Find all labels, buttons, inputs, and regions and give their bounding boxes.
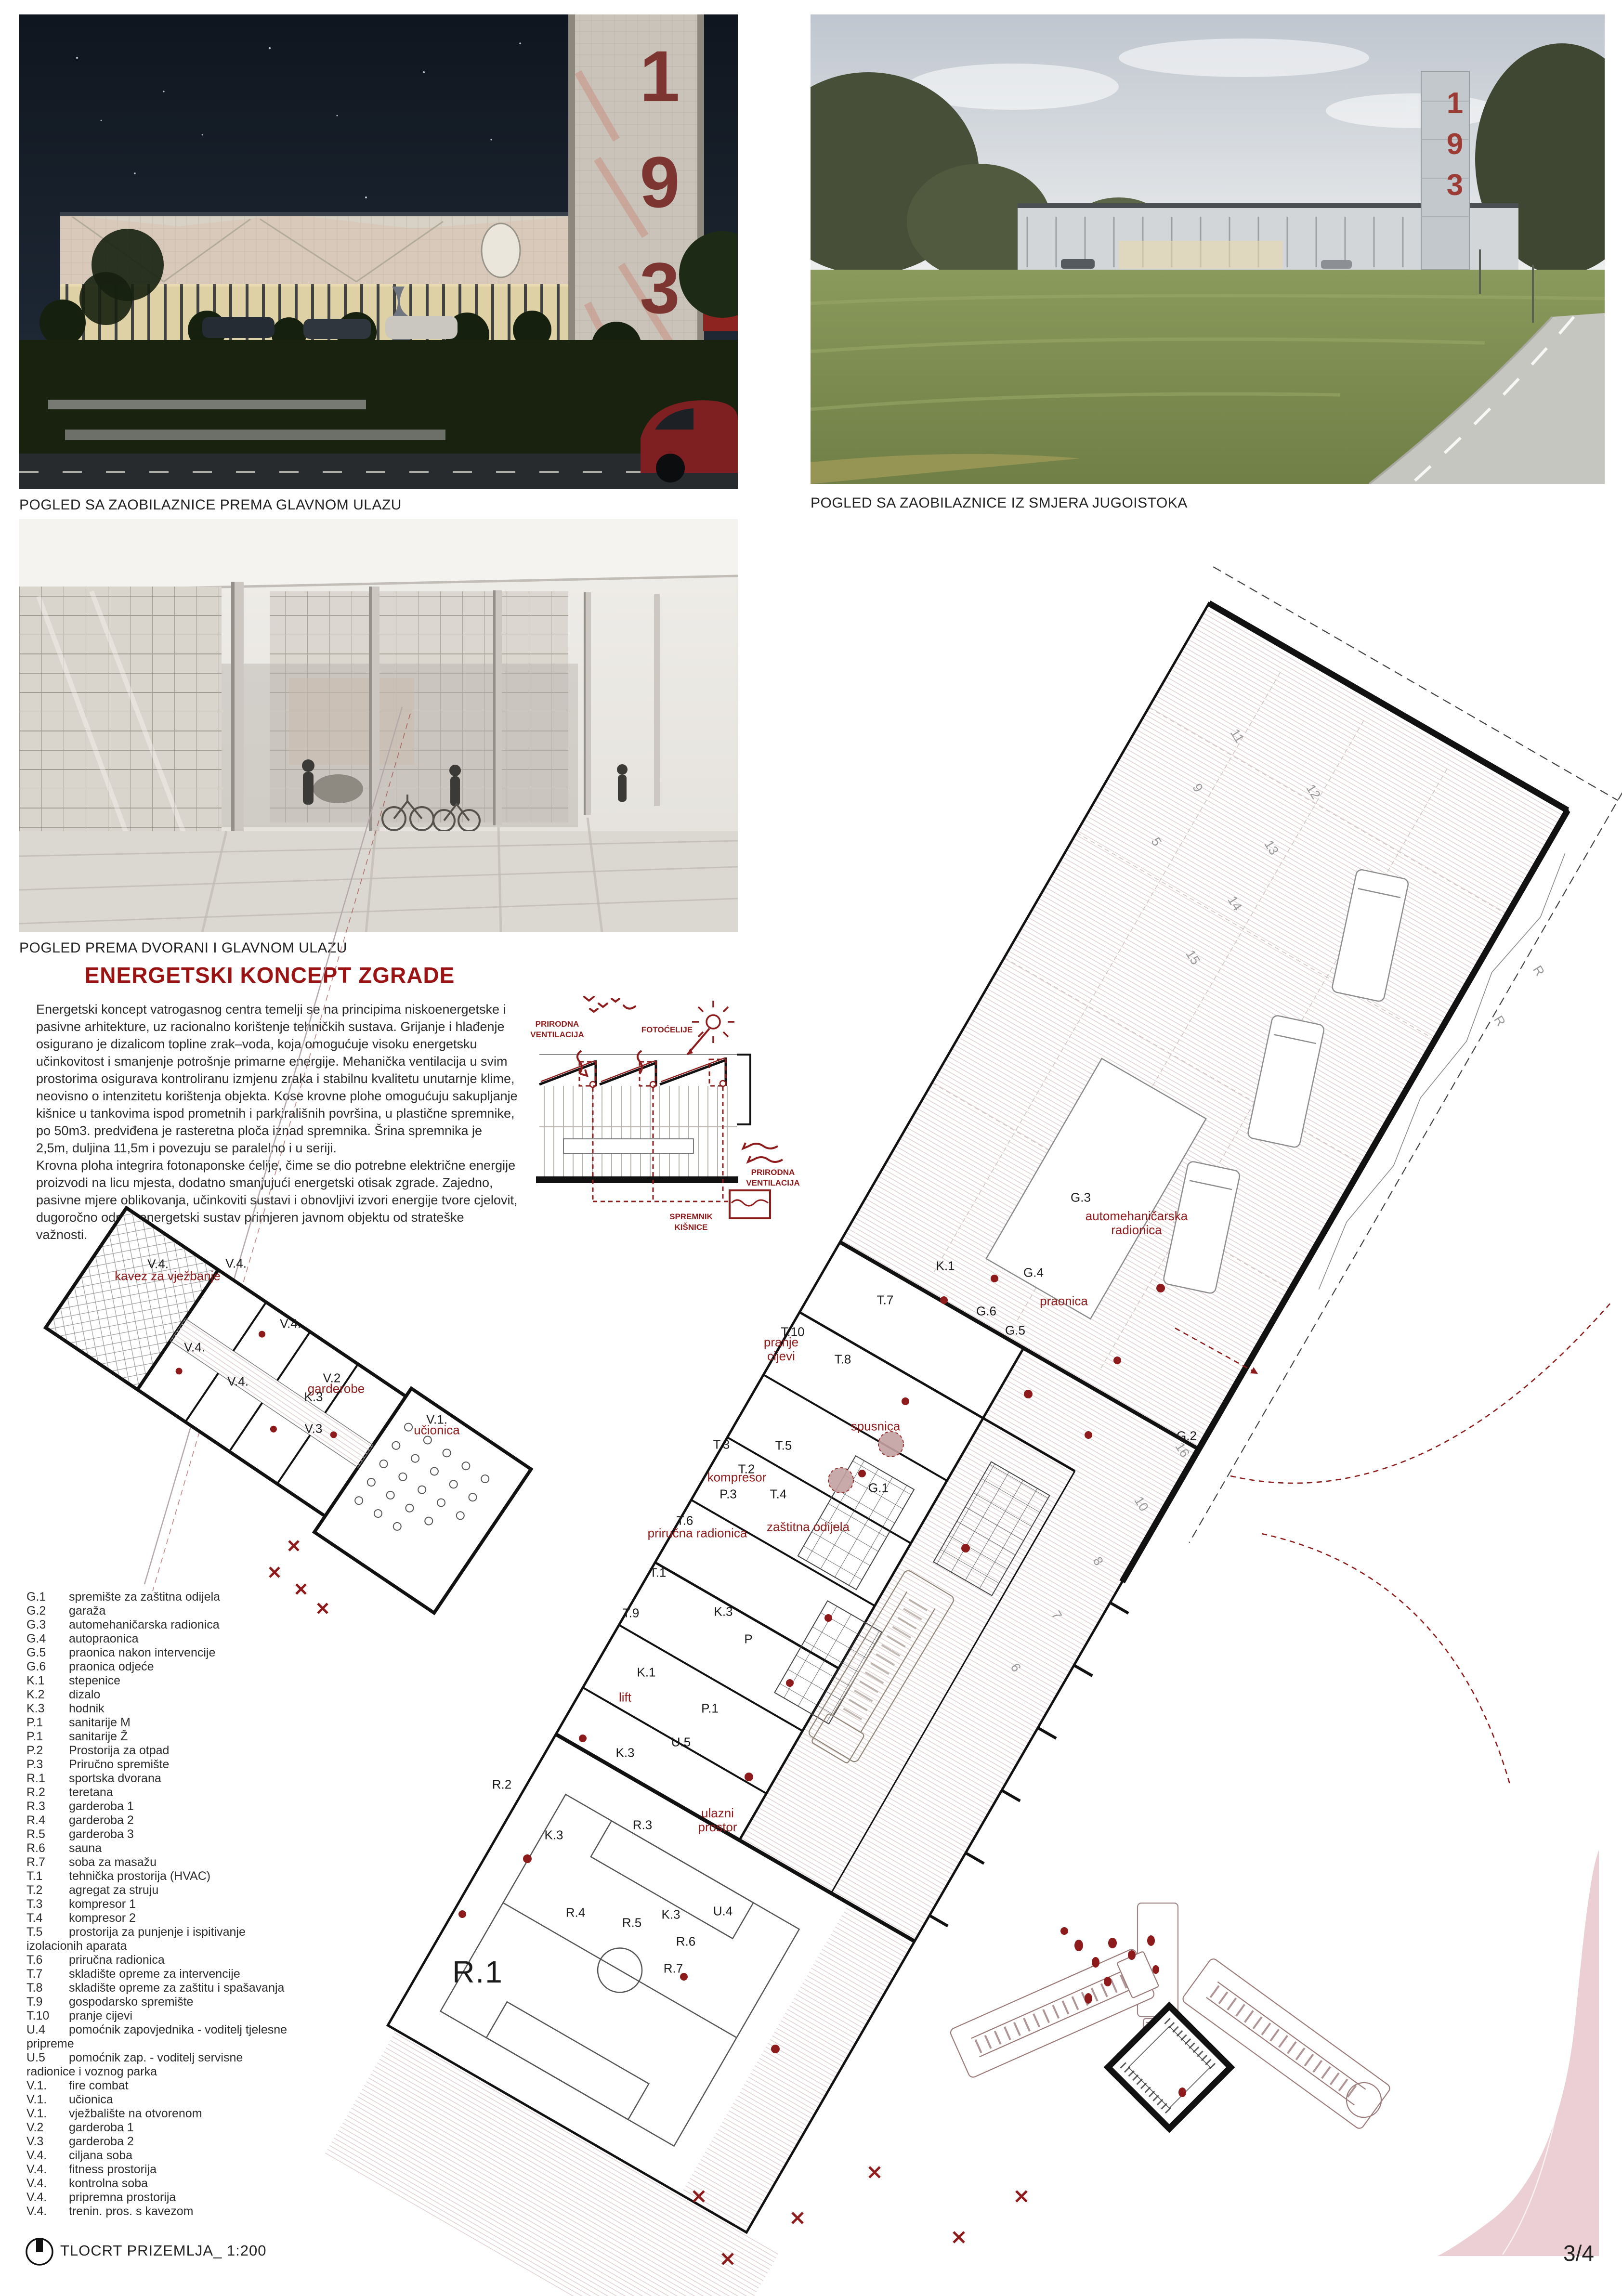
legend-code: V.2 bbox=[26, 2121, 69, 2135]
legend-row: R.3garderoba 1 bbox=[26, 1800, 289, 1813]
legend-label: Priručno spremište bbox=[69, 1758, 169, 1771]
legend-row: T.8skladište opreme za zaštitu i spašava… bbox=[26, 1981, 289, 1995]
legend-label: soba za masažu bbox=[69, 1855, 157, 1869]
plan-scale-label: TLOCRT PRIZEMLJA_ 1:200 bbox=[60, 2242, 266, 2259]
legend-label: pranje cijevi bbox=[69, 2009, 132, 2022]
legend-label: garderoba 1 bbox=[69, 2121, 134, 2134]
legend-code: G.3 bbox=[26, 1618, 69, 1632]
legend-code: R.2 bbox=[26, 1786, 69, 1800]
legend-row: G.5praonica nakon intervencije bbox=[26, 1646, 289, 1660]
legend-code: T.2 bbox=[26, 1883, 69, 1897]
legend-label: kompresor 1 bbox=[69, 1897, 136, 1911]
legend-code: V.4. bbox=[26, 2149, 69, 2163]
legend-label: stepenice bbox=[69, 1674, 120, 1687]
legend-code: V.3 bbox=[26, 2135, 69, 2149]
legend-row: K.1stepenice bbox=[26, 1674, 289, 1688]
legend-code: V.4. bbox=[26, 2205, 69, 2218]
legend-label: hodnik bbox=[69, 1702, 105, 1715]
legend-code: T.4 bbox=[26, 1911, 69, 1925]
legend-code: P.2 bbox=[26, 1744, 69, 1758]
legend-label: garaža bbox=[69, 1604, 105, 1618]
legend-code: V.1. bbox=[26, 2093, 69, 2107]
legend-code: K.3 bbox=[26, 1702, 69, 1716]
legend-row: T.6priručna radionica bbox=[26, 1953, 289, 1967]
legend-row: G.4autopraonica bbox=[26, 1632, 289, 1646]
legend-label: vježbalište na otvorenom bbox=[69, 2107, 202, 2120]
legend-code: R.5 bbox=[26, 1827, 69, 1841]
legend-row: T.10pranje cijevi bbox=[26, 2009, 289, 2023]
legend-code: G.1 bbox=[26, 1590, 69, 1604]
legend-code: K.2 bbox=[26, 1688, 69, 1702]
legend-label: skladište opreme za intervencije bbox=[69, 1967, 240, 1981]
legend-code: T.1 bbox=[26, 1869, 69, 1883]
legend-label: sauna bbox=[69, 1841, 102, 1855]
legend-row: T.7skladište opreme za intervencije bbox=[26, 1967, 289, 1981]
page-number: 3/4 bbox=[1563, 2240, 1594, 2266]
legend-row: V.4.fitness prostorija bbox=[26, 2163, 289, 2177]
legend-row: V.1.vježbalište na otvorenom bbox=[26, 2107, 289, 2121]
legend-row: P.3Priručno spremište bbox=[26, 1758, 289, 1772]
ladder-truck-right bbox=[1181, 1957, 1394, 2131]
legend-row: V.2garderoba 1 bbox=[26, 2121, 289, 2135]
north-arrow-icon bbox=[26, 2239, 52, 2265]
legend-label: garderoba 2 bbox=[69, 1813, 134, 1827]
legend-label: spremište za zaštitna odijela bbox=[69, 1590, 220, 1604]
legend-row: P.1sanitarije Ž bbox=[26, 1730, 289, 1744]
legend-row: T.3kompresor 1 bbox=[26, 1897, 289, 1911]
legend-label: sanitarije Ž bbox=[69, 1730, 128, 1743]
legend-code: R.7 bbox=[26, 1855, 69, 1869]
legend-label: automehaničarska radionica bbox=[69, 1618, 220, 1631]
legend-label: fitness prostorija bbox=[69, 2163, 157, 2176]
legend-label: garderoba 1 bbox=[69, 1800, 134, 1813]
legend-code: G.6 bbox=[26, 1660, 69, 1674]
legend-code: T.8 bbox=[26, 1981, 69, 1995]
legend-code: T.6 bbox=[26, 1953, 69, 1967]
legend-row: R.1sportska dvorana bbox=[26, 1772, 289, 1786]
legend-label: autopraonica bbox=[69, 1632, 139, 1645]
legend-row: K.3hodnik bbox=[26, 1702, 289, 1716]
legend-row: R.6sauna bbox=[26, 1841, 289, 1855]
presentation-sheet: 1 9 3 POGLED bbox=[0, 0, 1622, 2296]
legend-row: G.3automehaničarska radionica bbox=[26, 1618, 289, 1632]
legend-row: T.2agregat za struju bbox=[26, 1883, 289, 1897]
legend-label: praonica nakon intervencije bbox=[69, 1646, 215, 1659]
legend-code: K.1 bbox=[26, 1674, 69, 1688]
legend-label: ciljana soba bbox=[69, 2149, 132, 2162]
legend-code: R.6 bbox=[26, 1841, 69, 1855]
legend-row: G.2garaža bbox=[26, 1604, 289, 1618]
legend-row: T.1tehnička prostorija (HVAC) bbox=[26, 1869, 289, 1883]
legend-row: G.6praonica odjeće bbox=[26, 1660, 289, 1674]
legend-code: V.4. bbox=[26, 2163, 69, 2177]
legend-label: dizalo bbox=[69, 1688, 100, 1701]
legend-label: gospodarsko spremište bbox=[69, 1995, 193, 2009]
legend-row: R.7soba za masažu bbox=[26, 1855, 289, 1869]
pink-road bbox=[1438, 1850, 1599, 2256]
legend-label: kontrolna soba bbox=[69, 2177, 148, 2190]
legend-row: T.9gospodarsko spremište bbox=[26, 1995, 289, 2009]
legend-row: R.5garderoba 3 bbox=[26, 1827, 289, 1841]
legend-code: T.10 bbox=[26, 2009, 69, 2023]
legend-code: P.1 bbox=[26, 1730, 69, 1744]
legend-row: P.1sanitarije M bbox=[26, 1716, 289, 1730]
legend-label: tehnička prostorija (HVAC) bbox=[69, 1869, 210, 1883]
legend-row: G.1spremište za zaštitna odijela bbox=[26, 1590, 289, 1604]
legend-row: R.2teretana bbox=[26, 1786, 289, 1800]
legend-code: T.3 bbox=[26, 1897, 69, 1911]
legend-code: V.4. bbox=[26, 2177, 69, 2191]
legend-row: V.4.kontrolna soba bbox=[26, 2177, 289, 2191]
legend-label: sanitarije M bbox=[69, 1716, 131, 1729]
legend-code: G.4 bbox=[26, 1632, 69, 1646]
legend-label: Prostorija za otpad bbox=[69, 1744, 169, 1757]
legend-label: trenin. pros. s kavezom bbox=[69, 2205, 193, 2218]
legend-row: K.2dizalo bbox=[26, 1688, 289, 1702]
legend-row: V.4.pripremna prostorija bbox=[26, 2191, 289, 2205]
legend-code: T.7 bbox=[26, 1967, 69, 1981]
legend-label: priručna radionica bbox=[69, 1953, 165, 1967]
legend-label: sportska dvorana bbox=[69, 1772, 161, 1785]
legend-code: V.1. bbox=[26, 2079, 69, 2093]
legend-code: R.1 bbox=[26, 1772, 69, 1786]
upper-floor-plan bbox=[35, 1200, 531, 1613]
legend-row: P.2Prostorija za otpad bbox=[26, 1744, 289, 1758]
legend-label: skladište opreme za zaštitu i spašavanja bbox=[69, 1981, 284, 1995]
legend-label: fire combat bbox=[69, 2079, 129, 2092]
legend-row: V.3garderoba 2 bbox=[26, 2135, 289, 2149]
legend-row: V.1.učionica bbox=[26, 2093, 289, 2107]
legend-code: R.4 bbox=[26, 1813, 69, 1827]
legend-code: T.9 bbox=[26, 1995, 69, 2009]
legend-row: V.4.trenin. pros. s kavezom bbox=[26, 2205, 289, 2218]
legend-row: R.4garderoba 2 bbox=[26, 1813, 289, 1827]
legend-code: U.5 bbox=[26, 2051, 69, 2065]
legend-code: V.1. bbox=[26, 2107, 69, 2121]
legend-code: V.4. bbox=[26, 2191, 69, 2205]
legend-row: V.4.ciljana soba bbox=[26, 2149, 289, 2163]
legend-code: P.1 bbox=[26, 1716, 69, 1730]
legend-row: T.4kompresor 2 bbox=[26, 1911, 289, 1925]
legend-code: G.2 bbox=[26, 1604, 69, 1618]
legend-label: garderoba 3 bbox=[69, 1827, 134, 1841]
legend-label: agregat za struju bbox=[69, 1883, 158, 1897]
legend-row: T.5prostorija za punjenje i ispitivanje … bbox=[26, 1925, 289, 1953]
legend-label: garderoba 2 bbox=[69, 2135, 134, 2148]
legend-code: P.3 bbox=[26, 1758, 69, 1772]
training-tower-complex bbox=[949, 1903, 1394, 2132]
legend-label: kompresor 2 bbox=[69, 1911, 136, 1925]
legend-code: R.3 bbox=[26, 1800, 69, 1813]
fire-pole bbox=[878, 1432, 903, 1457]
legend-label: teretana bbox=[69, 1786, 113, 1799]
legend-label: pripremna prostorija bbox=[69, 2191, 176, 2204]
legend-code: U.4 bbox=[26, 2023, 69, 2037]
legend-code: T.5 bbox=[26, 1925, 69, 1939]
legend-row: U.4pomoćnik zapovjednika - voditelj tjel… bbox=[26, 2023, 289, 2051]
legend-row: V.1.fire combat bbox=[26, 2079, 289, 2093]
legend-label: učionica bbox=[69, 2093, 113, 2106]
legend-row: U.5pomoćnik zap. - voditelj servisne rad… bbox=[26, 2051, 289, 2079]
legend-label: praonica odjeće bbox=[69, 1660, 154, 1673]
legend-code: G.5 bbox=[26, 1646, 69, 1660]
fire-pole bbox=[828, 1468, 853, 1493]
room-legend: G.1spremište za zaštitna odijelaG.2garaž… bbox=[26, 1590, 289, 2218]
training-tower-plan bbox=[1108, 2006, 1231, 2129]
